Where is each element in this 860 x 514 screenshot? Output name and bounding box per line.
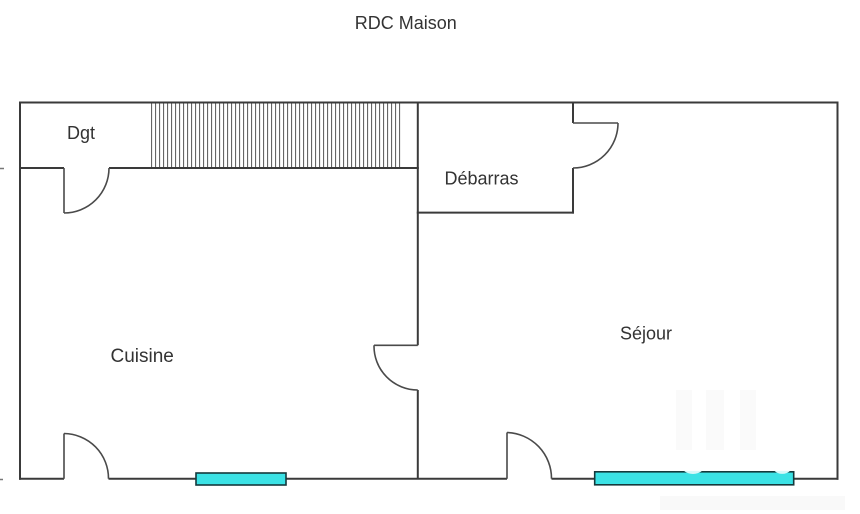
svg-text:RDC Maison: RDC Maison <box>355 13 457 33</box>
svg-text:Débarras: Débarras <box>445 169 519 189</box>
svg-text:Dgt: Dgt <box>67 123 95 143</box>
svg-text:Séjour: Séjour <box>620 324 672 344</box>
svg-text:Cuisine: Cuisine <box>111 346 174 367</box>
